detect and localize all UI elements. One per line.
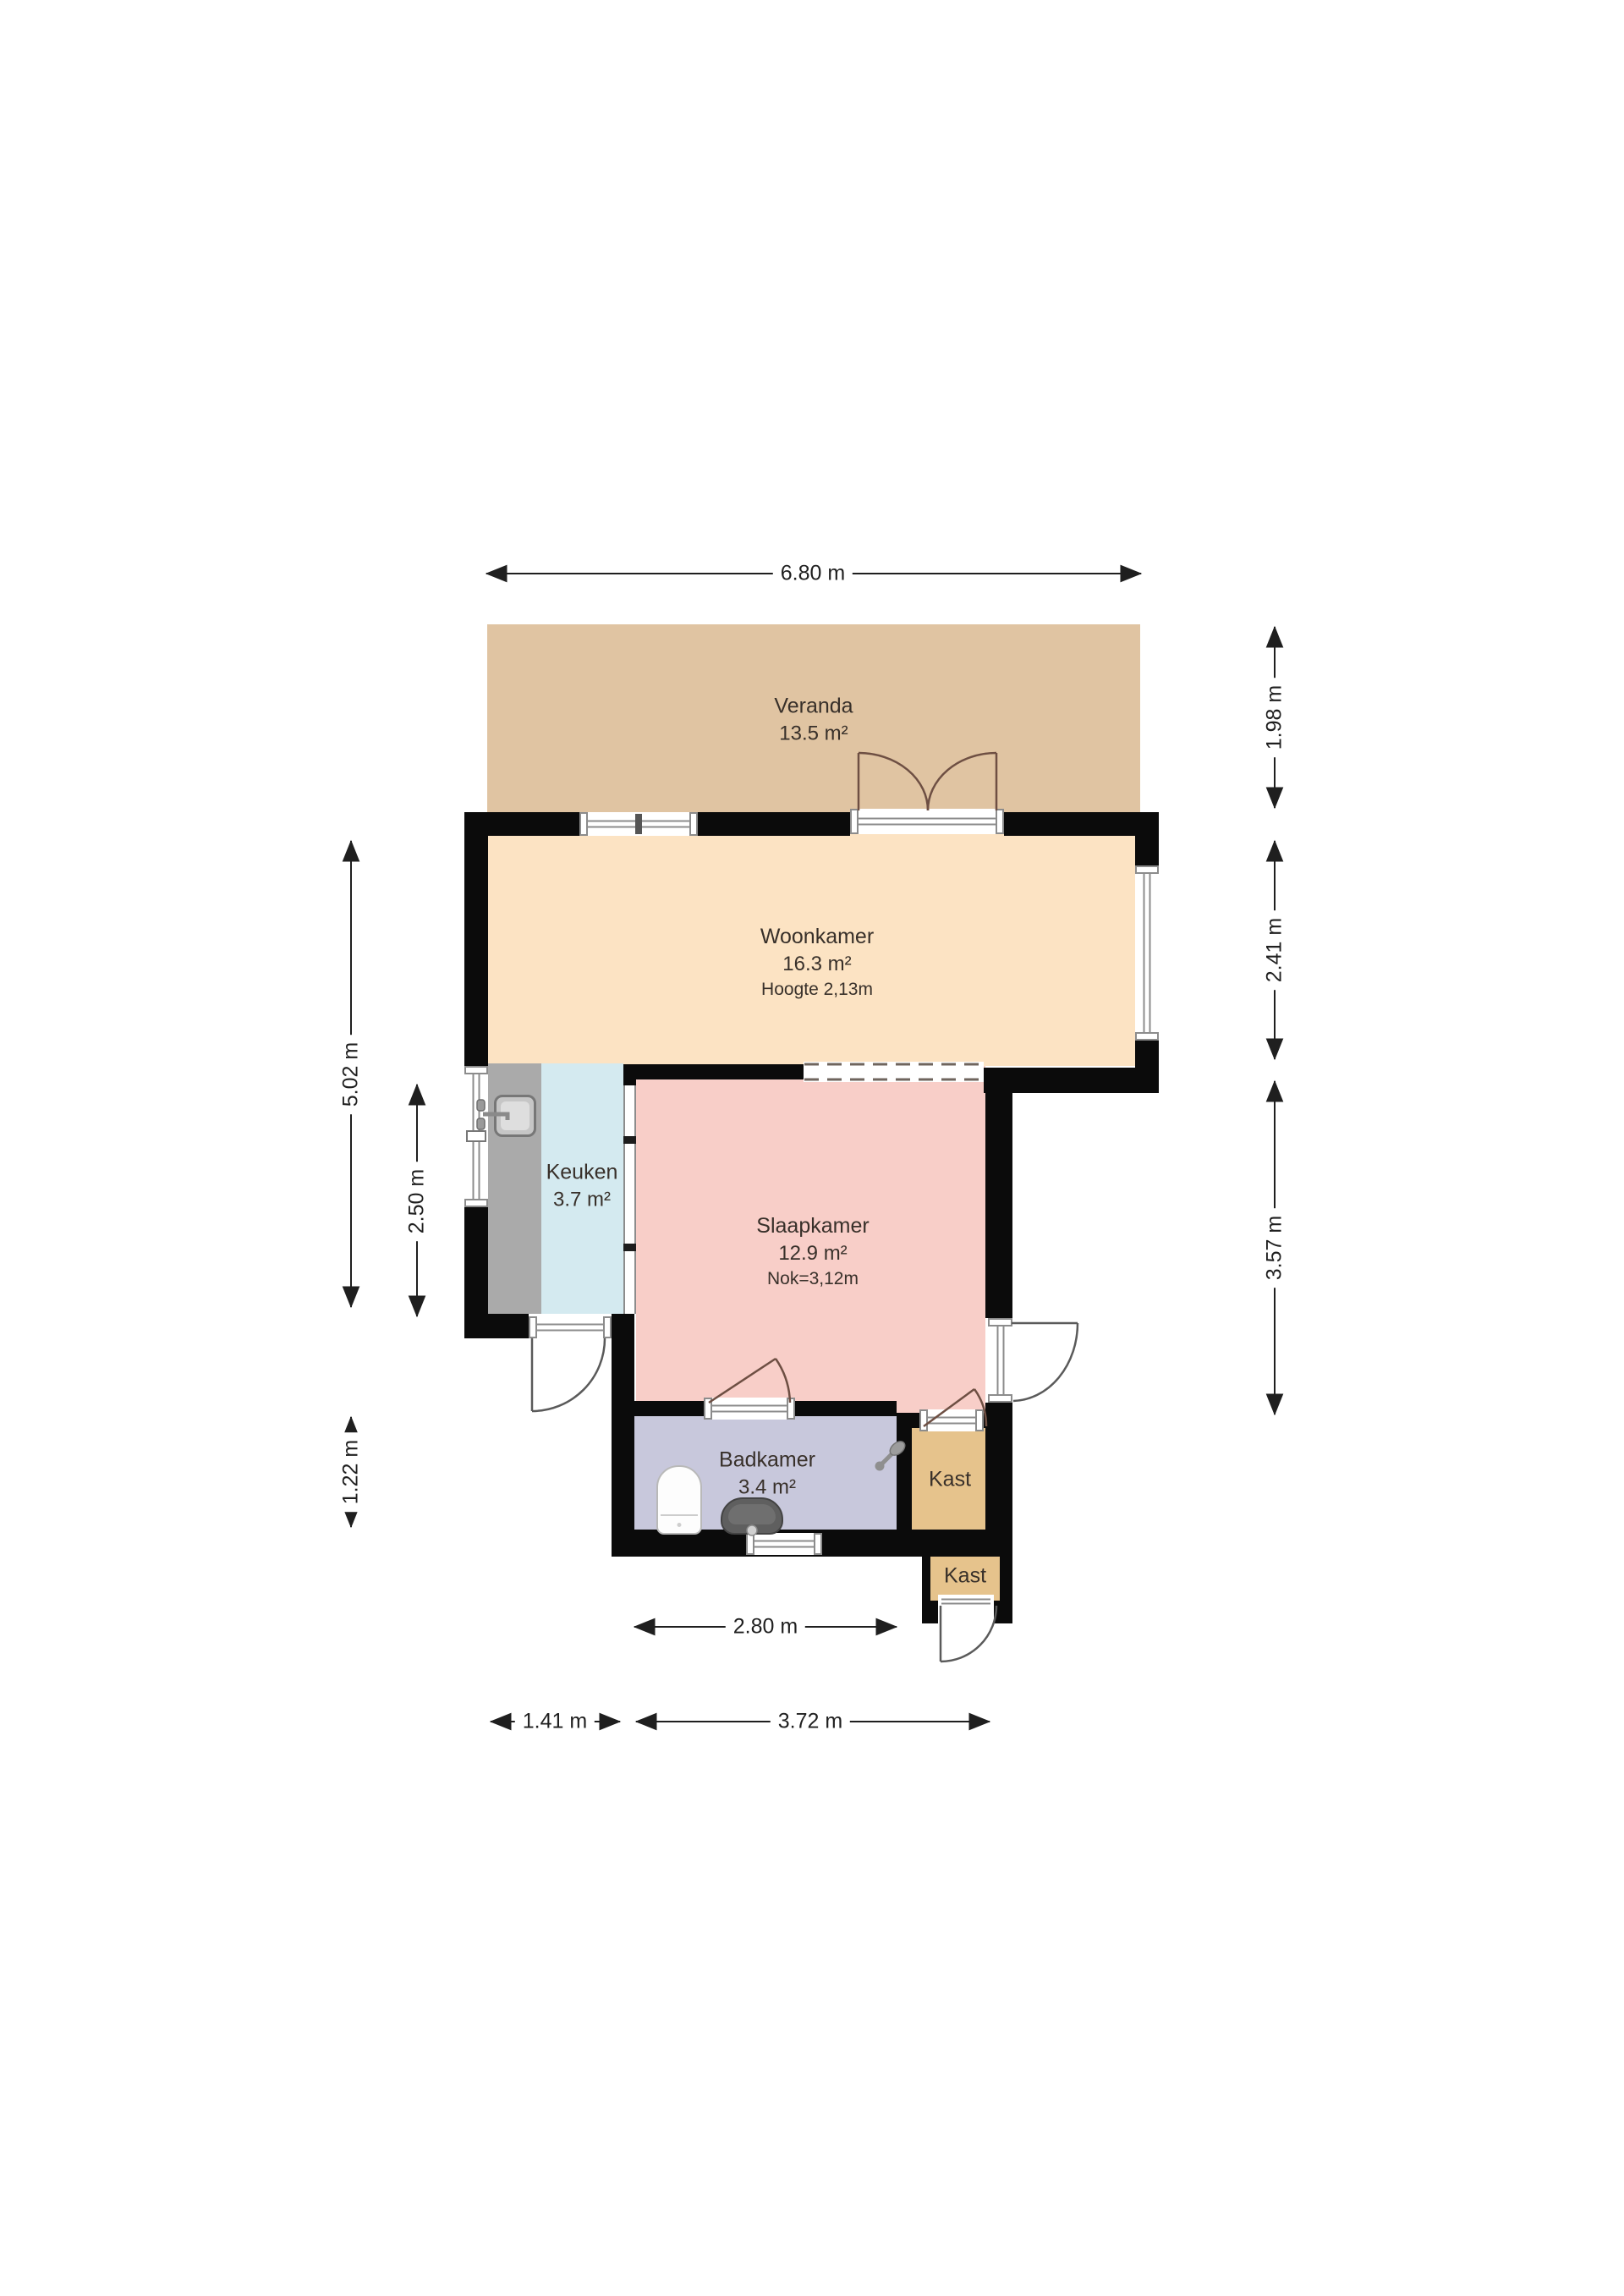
badkamer-label: Badkamer 3.4 m² [719,1447,815,1502]
room-name: Slaapkamer [756,1212,869,1240]
dim-badkamer-depth: 1.22 m [338,1432,365,1512]
keuken-door-icon [532,1338,605,1411]
kast-boven-door-icon [924,1389,986,1426]
room-area: 3.7 m² [546,1187,618,1214]
kitchen-faucet-icon [477,1100,507,1129]
kast-onder-door-icon [941,1606,996,1662]
kast-onder-label: Kast [944,1563,986,1590]
floorplan-canvas: Veranda 13.5 m² Woonkamer 16.3 m² Hoogte… [0,0,1624,2296]
room-name: Keuken [546,1159,618,1187]
washbasin-faucet-dot [747,1525,757,1535]
room-name: Badkamer [719,1447,815,1475]
room-name: Veranda [774,693,853,721]
room-name: Kast [944,1563,986,1590]
room-name: Kast [929,1466,971,1494]
dim-veranda-depth: 1.98 m [1262,678,1288,757]
badkamer-door-icon [709,1359,790,1403]
keuken-label: Keuken 3.7 m² [546,1159,618,1214]
room-area: 12.9 m² [756,1240,869,1267]
annotation-layer [0,0,1624,2296]
room-area: 16.3 m² [760,951,874,978]
room-area: 13.5 m² [774,721,853,748]
room-note: Nok=3,12m [756,1266,869,1290]
veranda-double-door-icon [859,753,996,810]
dim-woonkamer-depth: 2.41 m [1262,910,1288,990]
woonkamer-label: Woonkamer 16.3 m² Hoogte 2,13m [760,923,874,1001]
shower-icon [875,1439,908,1471]
dashed-opening-lines [804,1064,984,1079]
dim-badkamer-width: 2.80 m [726,1614,805,1640]
room-name: Woonkamer [760,923,874,951]
dim-keuken-depth: 2.50 m [404,1162,431,1241]
kast-boven-label: Kast [929,1466,971,1494]
dim-slaapkamer-depth: 3.57 m [1262,1208,1288,1288]
veranda-label: Veranda 13.5 m² [774,693,853,748]
dim-bottom-right-width: 3.72 m [771,1709,850,1735]
dim-bottom-left-width: 1.41 m [515,1709,595,1735]
dim-left-total: 5.02 m [338,1035,365,1114]
dim-total-width: 6.80 m [773,561,853,587]
room-note: Hoogte 2,13m [760,977,874,1001]
slaapkamer-door-icon [1012,1323,1078,1401]
room-area: 3.4 m² [719,1475,815,1502]
slaapkamer-label: Slaapkamer 12.9 m² Nok=3,12m [756,1212,869,1290]
